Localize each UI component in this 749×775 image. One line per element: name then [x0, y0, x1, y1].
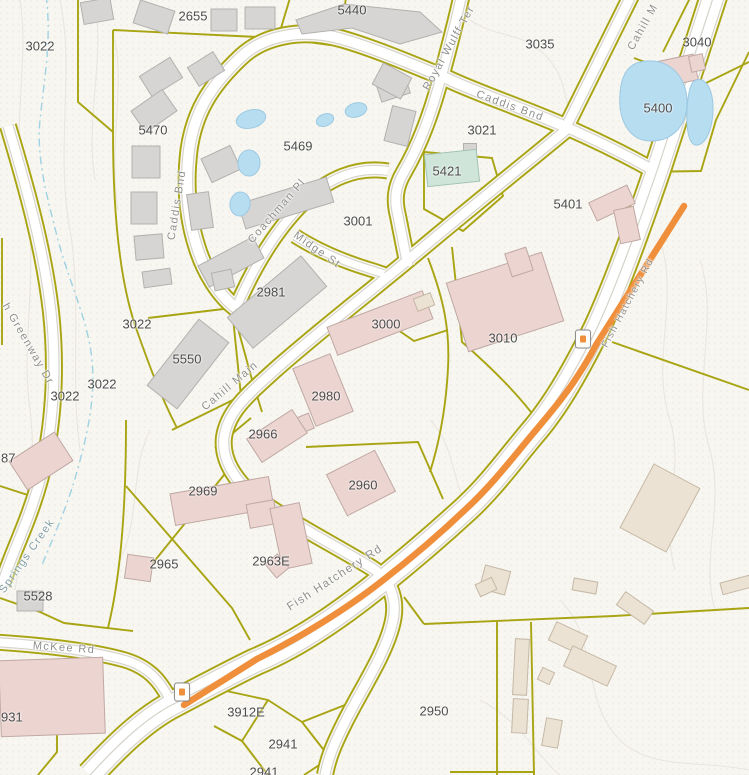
building: [17, 591, 43, 611]
pond: [620, 61, 687, 141]
building: [132, 146, 160, 178]
building: [124, 554, 153, 581]
building: [211, 9, 237, 31]
pond: [238, 150, 260, 176]
segment-endpoint-marker-2[interactable]: [174, 683, 190, 702]
building: [131, 192, 157, 224]
building: [245, 7, 275, 29]
building: [142, 268, 172, 288]
marker-glyph-icon: [179, 689, 185, 696]
building: [0, 657, 105, 737]
building: [513, 639, 530, 696]
marker-glyph-icon: [580, 336, 586, 343]
building: [211, 269, 234, 291]
building: [424, 149, 479, 186]
segment-endpoint-marker-1[interactable]: [575, 330, 591, 349]
building: [688, 54, 705, 73]
building: [187, 192, 214, 231]
building: [134, 234, 164, 260]
map-canvas[interactable]: 3022265554403035304054005470546930215421…: [0, 0, 749, 775]
map-geometry-layer: [0, 0, 749, 775]
building: [512, 699, 529, 734]
